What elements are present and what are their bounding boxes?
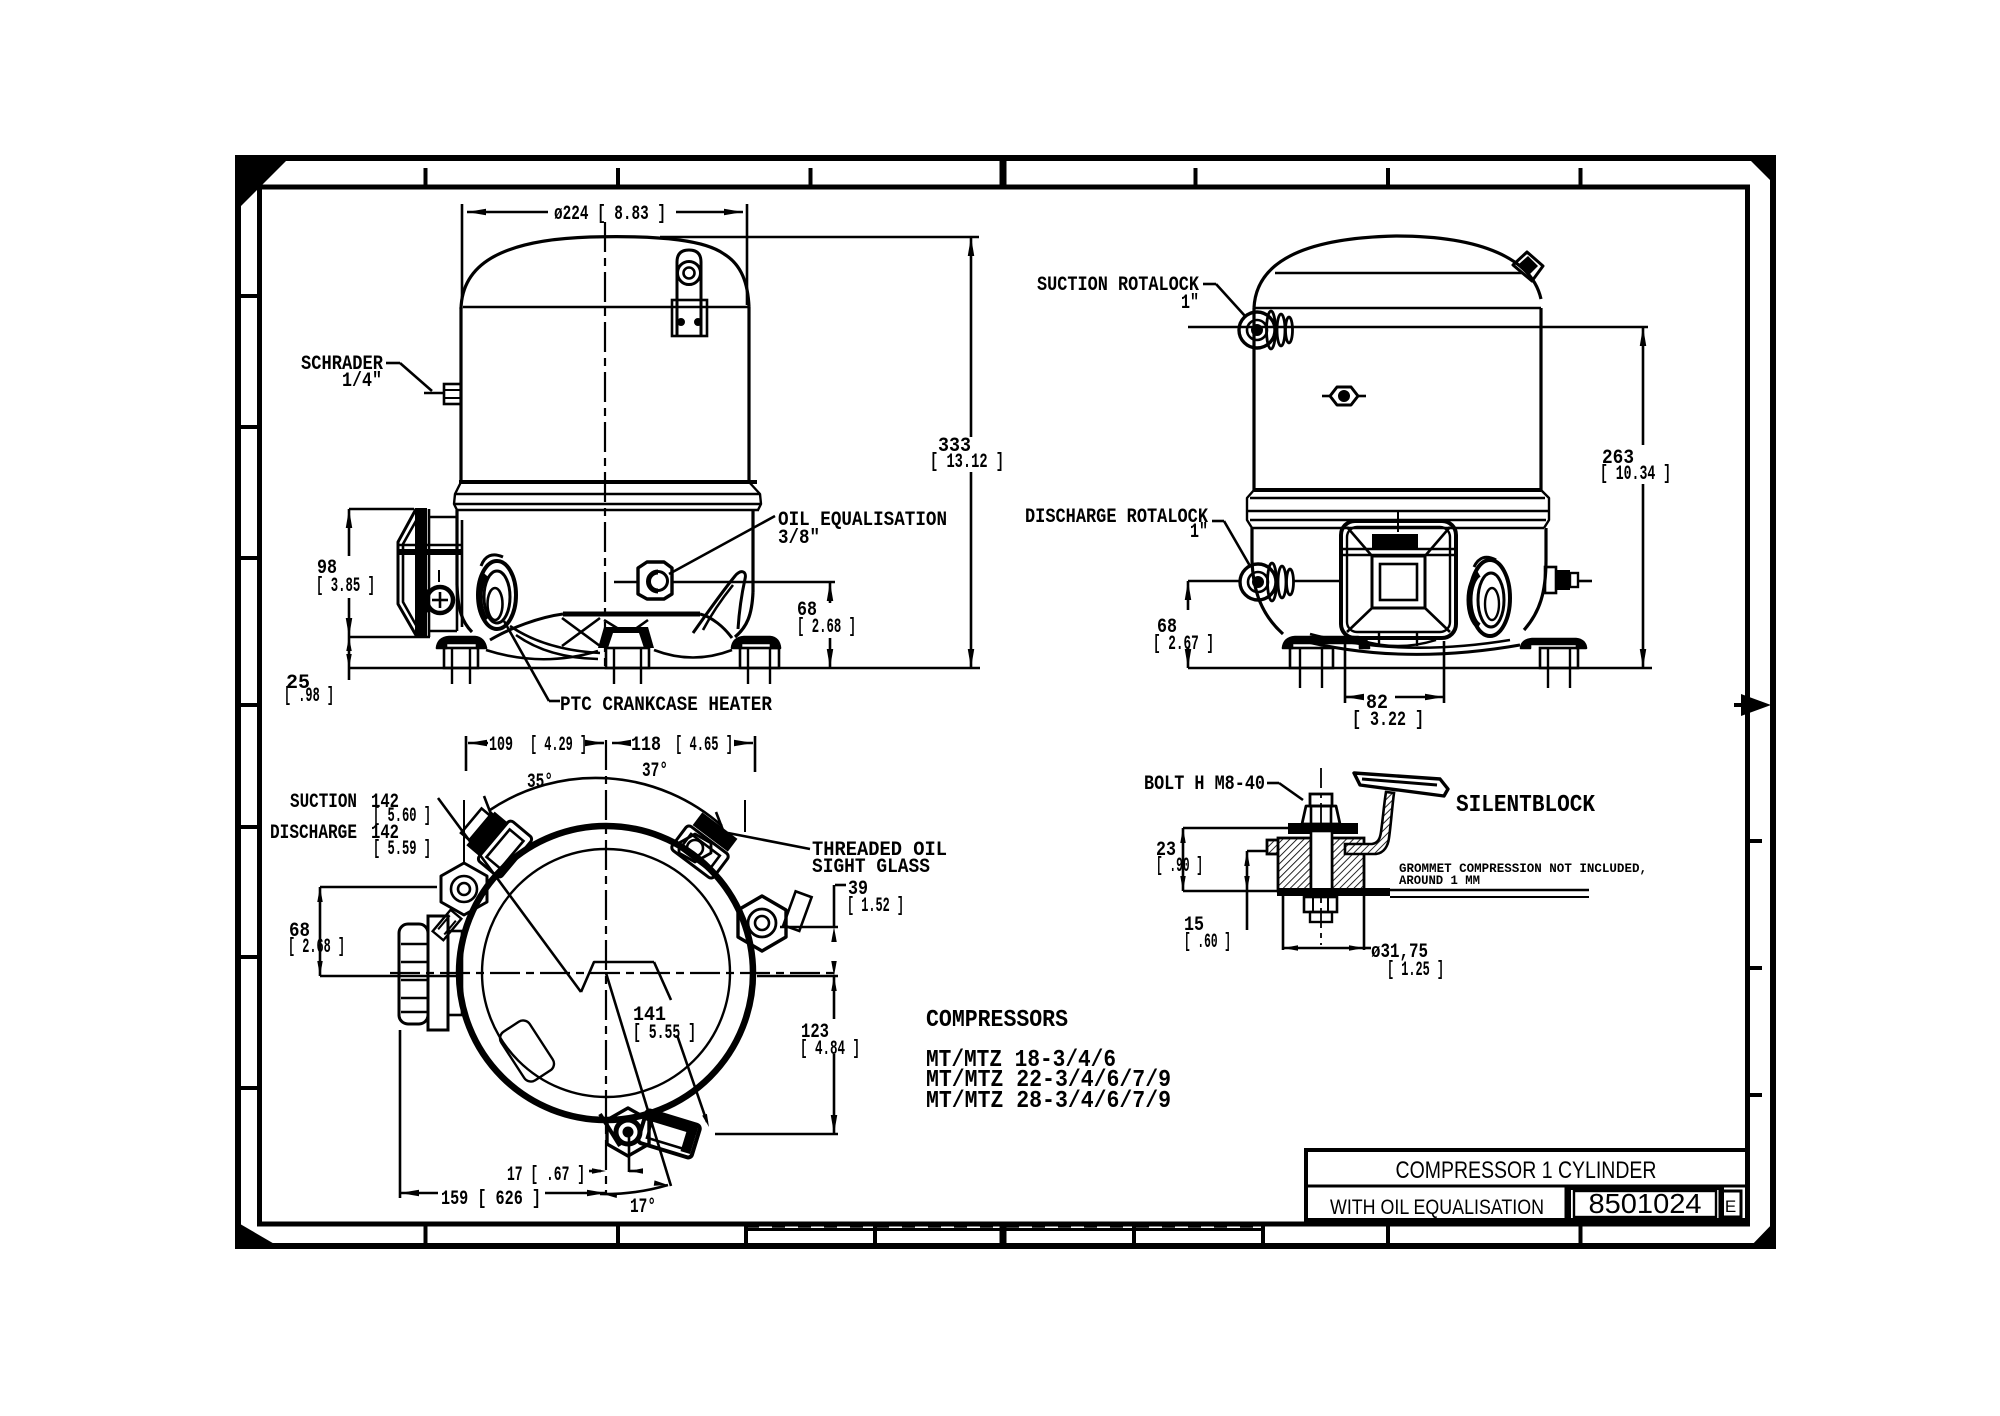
svg-text:[ .98 ]: [ .98 ] — [284, 685, 334, 708]
svg-text:[ .60 ]: [ .60 ] — [1184, 931, 1231, 954]
svg-text:3/8″: 3/8″ — [778, 527, 820, 550]
svg-text:1/4″: 1/4″ — [342, 370, 382, 393]
svg-text:SUCTION: SUCTION — [290, 791, 357, 814]
svg-text:[ 10.34 ]: [ 10.34 ] — [1600, 463, 1671, 486]
svg-text:SIGHT GLASS: SIGHT GLASS — [812, 856, 930, 879]
svg-text:118: 118 — [631, 734, 661, 757]
svg-text:[ 4.29 ]: [ 4.29 ] — [530, 734, 587, 757]
svg-text:AROUND 1 MM: AROUND 1 MM — [1399, 873, 1480, 888]
svg-text:[ 1.52 ]: [ 1.52 ] — [847, 895, 904, 918]
svg-text:SUCTION ROTALOCK: SUCTION ROTALOCK — [1037, 274, 1199, 297]
svg-text:[ 5.59 ]: [ 5.59 ] — [373, 838, 431, 861]
svg-text:109: 109 — [489, 734, 513, 757]
svg-text:PTC CRANKCASE HEATER: PTC CRANKCASE HEATER — [560, 694, 772, 717]
svg-text:[ 13.12 ]: [ 13.12 ] — [930, 451, 1004, 474]
svg-text:[ 4.65 ]: [ 4.65 ] — [675, 734, 733, 757]
svg-text:MT/MTZ 28-3/4/6/7/9: MT/MTZ 28-3/4/6/7/9 — [926, 1088, 1171, 1115]
svg-text:DISCHARGE: DISCHARGE — [270, 822, 357, 845]
svg-text:17°: 17° — [630, 1196, 656, 1219]
svg-text:WITH OIL EQUALISATION: WITH OIL EQUALISATION — [1330, 1196, 1544, 1219]
svg-text:[ 4.84 ]: [ 4.84 ] — [800, 1038, 860, 1061]
svg-text:[ 3.22 ]: [ 3.22 ] — [1352, 709, 1424, 732]
svg-text:[ 1.25 ]: [ 1.25 ] — [1387, 959, 1444, 982]
svg-text:1″: 1″ — [1181, 292, 1199, 315]
svg-text:8501024: 8501024 — [1589, 1188, 1702, 1219]
svg-text:35°: 35° — [527, 771, 553, 794]
svg-text:E: E — [1725, 1197, 1736, 1216]
svg-text:1″: 1″ — [1190, 521, 1208, 544]
svg-text:[ 2.67 ]: [ 2.67 ] — [1153, 633, 1214, 656]
svg-text:DISCHARGE ROTALOCK: DISCHARGE ROTALOCK — [1025, 506, 1208, 529]
svg-text:[ 3.85 ]: [ 3.85 ] — [316, 575, 375, 598]
svg-text:[ .90 ]: [ .90 ] — [1156, 855, 1203, 878]
svg-text:159 [ 626 ]: 159 [ 626 ] — [441, 1188, 541, 1211]
svg-text:[ 5.55 ]: [ 5.55 ] — [633, 1022, 696, 1045]
svg-text:ø224 [ 8.83 ]: ø224 [ 8.83 ] — [554, 203, 666, 226]
svg-text:SILENTBLOCK: SILENTBLOCK — [1456, 792, 1596, 819]
svg-text:37°: 37° — [642, 760, 668, 783]
svg-text:BOLT H M8-40: BOLT H M8-40 — [1144, 773, 1265, 796]
svg-text:COMPRESSORS: COMPRESSORS — [926, 1007, 1068, 1034]
svg-text:COMPRESSOR 1 CYLINDER: COMPRESSOR 1 CYLINDER — [1396, 1157, 1657, 1184]
svg-text:[ 2.68 ]: [ 2.68 ] — [288, 936, 345, 959]
svg-text:[ 2.68 ]: [ 2.68 ] — [797, 616, 856, 639]
svg-text:17 [ .67 ]: 17 [ .67 ] — [507, 1164, 585, 1187]
